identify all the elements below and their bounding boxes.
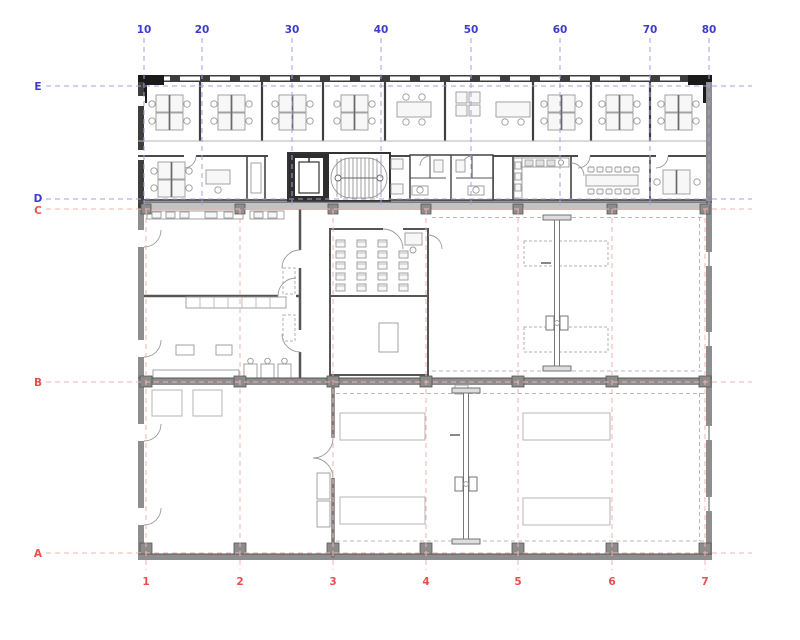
crane-end-truck bbox=[543, 366, 571, 371]
lab-room bbox=[153, 297, 291, 379]
grid-red-verticals bbox=[146, 209, 705, 570]
axis-label-top-80: 80 bbox=[702, 24, 717, 36]
crane-trolley bbox=[546, 316, 554, 330]
axis-label-row-B: B bbox=[34, 377, 42, 389]
stair-core bbox=[288, 153, 403, 201]
fixture bbox=[391, 159, 403, 169]
axis-label-bottom-1: 1 bbox=[142, 576, 149, 588]
axis-label-bottom-6: 6 bbox=[608, 576, 615, 588]
office-meeting-table-2 bbox=[456, 92, 530, 125]
kitchen-sink bbox=[558, 160, 563, 165]
toilet bbox=[456, 160, 465, 172]
axis-label-row-E: E bbox=[34, 81, 41, 93]
crane-trolley bbox=[455, 477, 463, 491]
floor-plan: 10 20 30 40 50 60 70 80 E D C B A 1 2 3 … bbox=[0, 0, 800, 640]
fixture bbox=[391, 184, 403, 194]
axis-label-bottom-4: 4 bbox=[422, 576, 429, 588]
wc-block bbox=[410, 155, 493, 200]
grid-axis-top: 10 20 30 40 50 60 70 80 bbox=[137, 24, 717, 36]
equipment-outline bbox=[523, 498, 610, 525]
axis-label-top-20: 20 bbox=[195, 24, 210, 36]
lectern-desk bbox=[405, 233, 422, 245]
sofa bbox=[251, 163, 261, 193]
b-wall bbox=[138, 376, 712, 394]
crane-trolley bbox=[560, 316, 568, 330]
storage-room-southwest bbox=[152, 382, 333, 558]
work-zone-outline bbox=[524, 327, 608, 352]
crane-end-truck bbox=[452, 388, 480, 393]
service-office-east bbox=[654, 170, 700, 194]
axis-label-row-A: A bbox=[34, 548, 43, 560]
axis-label-bottom-5: 5 bbox=[514, 576, 521, 588]
classroom bbox=[330, 226, 428, 296]
elevator-car bbox=[299, 162, 319, 193]
axis-label-bottom-3: 3 bbox=[329, 576, 336, 588]
service-office-west bbox=[151, 162, 261, 197]
crane-lower bbox=[336, 388, 704, 544]
crane-end-truck bbox=[543, 215, 571, 220]
axis-label-bottom-2: 2 bbox=[236, 576, 243, 588]
meeting-room bbox=[571, 163, 639, 194]
crane-beam bbox=[555, 220, 560, 366]
crane-upper bbox=[432, 215, 704, 371]
appliance bbox=[536, 160, 544, 166]
appliance bbox=[525, 160, 533, 166]
east-wall bbox=[706, 82, 712, 560]
axis-label-top-60: 60 bbox=[553, 24, 568, 36]
south-wall bbox=[138, 554, 712, 560]
workshop bbox=[147, 211, 295, 341]
equipment-outline bbox=[340, 497, 425, 524]
elevator bbox=[289, 154, 329, 200]
axis-label-top-50: 50 bbox=[464, 24, 479, 36]
sink-stations bbox=[244, 358, 291, 378]
grid-axis-bottom: 1 2 3 4 5 6 7 bbox=[142, 576, 708, 588]
kitchen bbox=[514, 158, 569, 198]
hall-upper bbox=[144, 209, 704, 379]
crane-trolley bbox=[469, 477, 477, 491]
axis-label-top-10: 10 bbox=[137, 24, 152, 36]
equipment-outline bbox=[340, 413, 425, 440]
axis-label-top-70: 70 bbox=[643, 24, 658, 36]
meeting-table bbox=[586, 175, 638, 186]
office-meeting-table-1 bbox=[397, 94, 431, 125]
grid-axis-left: E D C B A bbox=[34, 81, 43, 560]
hall-west-walls bbox=[144, 209, 300, 378]
axis-label-top-30: 30 bbox=[285, 24, 300, 36]
office-band bbox=[138, 82, 706, 201]
crane-beam bbox=[464, 393, 469, 539]
axis-label-top-40: 40 bbox=[374, 24, 389, 36]
building bbox=[137, 75, 713, 560]
work-zone-outline bbox=[524, 241, 608, 266]
toilet bbox=[434, 160, 443, 172]
appliance bbox=[547, 160, 555, 166]
axis-label-bottom-7: 7 bbox=[701, 576, 708, 588]
equipment-outline bbox=[523, 413, 610, 440]
hall-lower bbox=[152, 382, 704, 558]
axis-label-row-D: D bbox=[34, 193, 43, 205]
axis-label-row-C: C bbox=[34, 205, 42, 217]
crane-end-truck bbox=[452, 539, 480, 544]
